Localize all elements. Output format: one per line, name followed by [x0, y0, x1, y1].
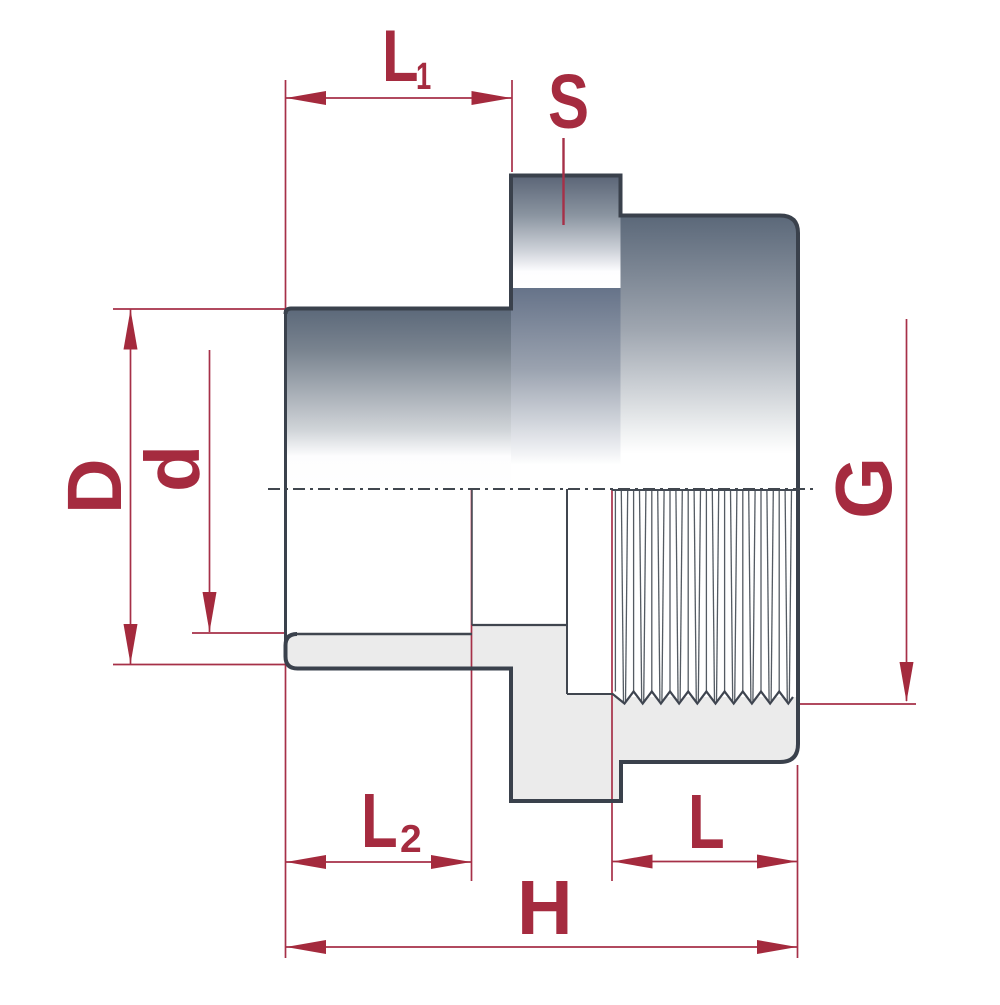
svg-text:1: 1 — [416, 56, 431, 98]
svg-text:L: L — [382, 16, 419, 97]
svg-text:2: 2 — [400, 818, 422, 861]
svg-text:H: H — [517, 865, 573, 951]
svg-text:D: D — [52, 458, 138, 514]
svg-text:L: L — [688, 778, 725, 865]
svg-text:L: L — [361, 777, 398, 864]
svg-text:d: d — [130, 445, 216, 492]
svg-text:S: S — [548, 58, 589, 144]
svg-text:G: G — [819, 457, 908, 519]
